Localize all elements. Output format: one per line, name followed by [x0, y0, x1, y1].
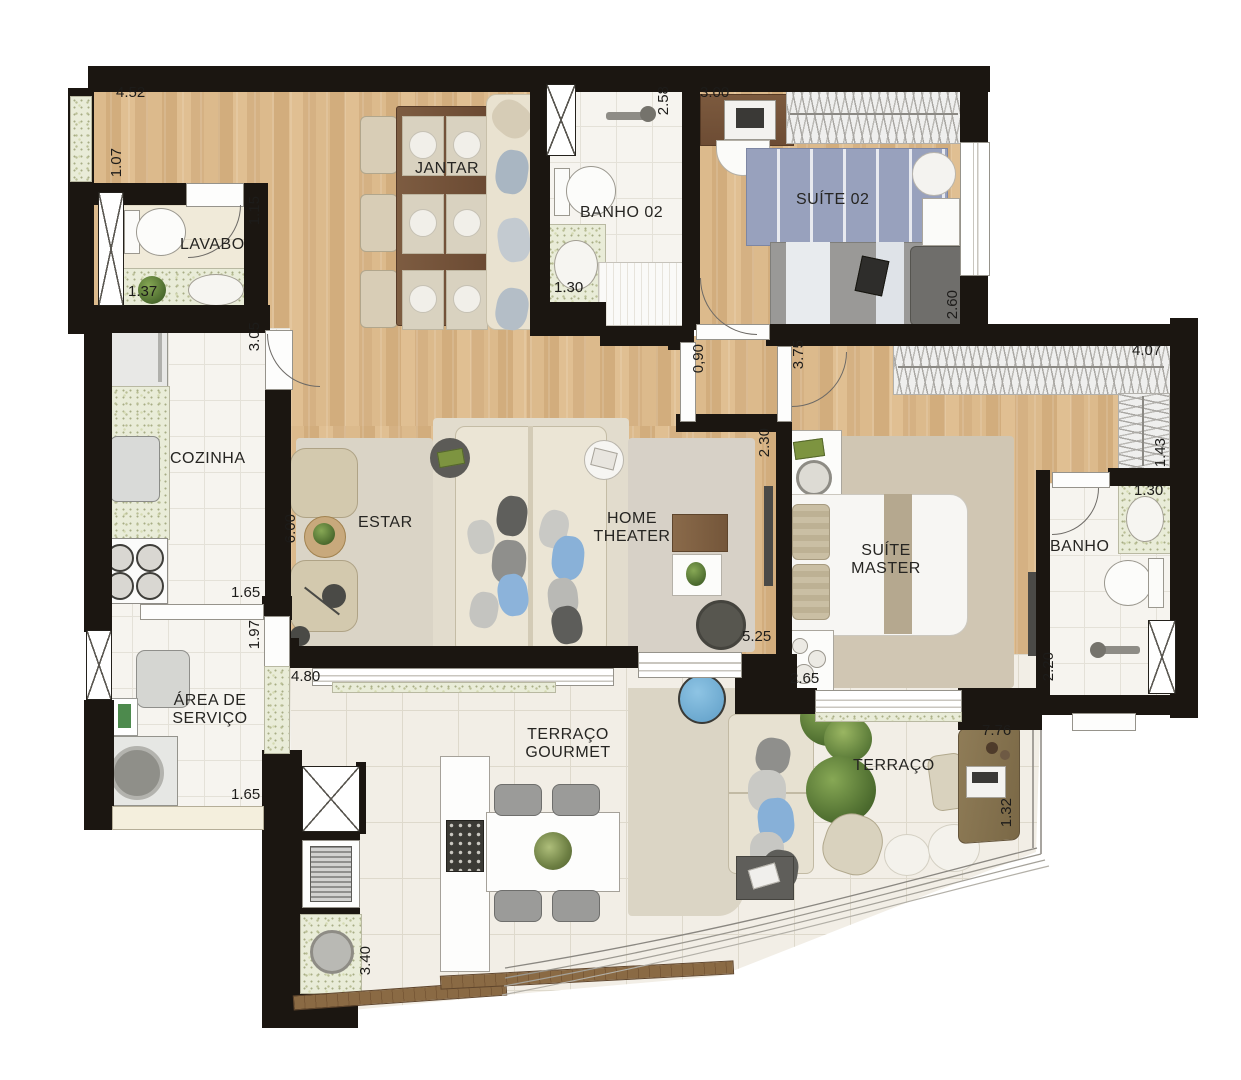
gourmet-sink [310, 930, 354, 974]
banho-door [1052, 472, 1110, 488]
nightstand-suite02 [922, 198, 960, 246]
kitchen-sink [110, 436, 160, 502]
dim-gourmet-width: 4.80 [291, 668, 320, 685]
terrace-pouf [884, 834, 930, 876]
wall [262, 750, 302, 1028]
dining-chair [360, 194, 398, 252]
room-label-suite02: SUÍTE 02 [796, 191, 869, 209]
shaft-banho [1148, 620, 1176, 694]
floor-corridor [530, 336, 694, 430]
round-table-suite02 [912, 152, 956, 196]
dim-lavabo-depth: 1.15 [246, 196, 263, 225]
banho-sink [1126, 496, 1164, 542]
window-planter [264, 666, 290, 754]
plant-pot [313, 523, 335, 545]
dim-hall-width: 0,90 [690, 344, 707, 373]
servico-pass [140, 604, 264, 620]
sofa-spine [528, 426, 533, 652]
shaft-gourmet [302, 766, 360, 832]
dining-chair [360, 270, 398, 328]
wall [92, 305, 270, 333]
dim-closet-depth: 1.43 [1152, 438, 1169, 467]
window-planter [70, 96, 92, 182]
dim-banho-shower: 2.20 [1040, 652, 1057, 681]
dim-jantar-left: 1.07 [108, 148, 125, 177]
dim-banho02-sink: 1.30 [554, 279, 583, 296]
coffee-cup [986, 742, 998, 754]
lavabo-door [186, 183, 244, 207]
wall [296, 646, 638, 668]
plate [409, 285, 437, 313]
dim-cozinha-door: 3.05 [246, 322, 263, 351]
centerpiece-flowers [534, 832, 572, 870]
deco-cup [808, 650, 826, 668]
pouf [696, 600, 746, 650]
closet-strip [893, 342, 1172, 395]
plate [453, 209, 481, 237]
gourmet-door-jamb [264, 616, 290, 668]
dining-chair [360, 116, 398, 174]
deco-plant [686, 562, 706, 586]
closet-rod [1142, 396, 1144, 466]
dim-lavabo-width: 1.37 [128, 283, 157, 300]
gourmet-chair [552, 890, 600, 922]
laundry-basket [118, 704, 131, 728]
wardrobe-suite02 [786, 88, 964, 144]
window-suite-master [815, 690, 962, 714]
dim-cozinha-pass: 1.65 [231, 584, 260, 601]
dim-suite-master-win: 2.65 [790, 670, 819, 687]
plate [453, 285, 481, 313]
coffee-cup [1000, 750, 1010, 760]
dim-suite02-desk: 3.00 [700, 84, 729, 101]
plate [453, 131, 481, 159]
rug-terraco [628, 688, 744, 916]
computer-screen [736, 108, 764, 128]
room-label-home-theater: HOME THEATER [570, 510, 694, 546]
wall [84, 806, 112, 830]
roller-blind [310, 846, 352, 902]
wall [776, 414, 792, 692]
room-label-banho02: BANHO 02 [580, 204, 663, 222]
wall [1040, 695, 1172, 715]
stove-burner [136, 544, 164, 572]
dim-servico-depth: 1.97 [246, 620, 263, 649]
room-label-area-servico: ÁREA DE SERVIÇO [160, 692, 260, 728]
wall [84, 330, 112, 632]
closet-rod [898, 366, 1164, 368]
lavabo-toilet-bowl [136, 208, 186, 256]
dim-terraco-desk: 1.32 [998, 798, 1015, 827]
plate [409, 209, 437, 237]
room-label-jantar: JANTAR [415, 160, 479, 178]
wall [530, 302, 606, 336]
tv-home-theater [764, 486, 773, 586]
wall [84, 700, 114, 808]
gourmet-chair [552, 784, 600, 816]
servico-sill [112, 806, 264, 830]
dim-servico-width: 1.65 [231, 786, 260, 803]
bed-sheet [786, 242, 830, 332]
dim-terraco-len: 7.76 [982, 722, 1011, 739]
wall [682, 88, 700, 330]
grill-cooktop [446, 820, 484, 872]
sliding-door-gourmet [638, 652, 742, 678]
shaft-banho02 [546, 84, 576, 156]
bed-pillow [792, 564, 830, 620]
dim-suite02-depth: 2.60 [944, 290, 961, 319]
window-banho [1072, 713, 1136, 731]
deco-cup [792, 638, 808, 654]
wall [785, 688, 817, 714]
room-label-terraco-gourmet: TERRAÇO GOURMET [508, 726, 628, 762]
room-label-lavabo: LAVABO [180, 236, 245, 254]
plate [409, 131, 437, 159]
washing-machine-door [110, 746, 164, 800]
dim-gourmet-counter: 3.40 [357, 946, 374, 975]
dim-suite-master-len: 5.25 [742, 628, 771, 645]
tv-suite-master [1028, 572, 1036, 656]
dim-suite-master-tv: 2.30 [756, 428, 773, 457]
banho-toilet-tank [1148, 558, 1164, 608]
wardrobe-rod [790, 113, 958, 115]
lavabo-sink [188, 274, 244, 306]
laptop-screen [972, 772, 998, 783]
armchair [290, 448, 358, 518]
window-planter [815, 712, 962, 722]
fridge-handle [158, 328, 162, 382]
bed-pillow [792, 504, 830, 560]
duct-shaft [98, 192, 124, 306]
dim-corredor: 3.75 [790, 340, 807, 369]
dim-closet-width: 4.07 [1132, 342, 1161, 359]
shower-tray [598, 262, 686, 326]
banho-toilet-bowl [1104, 560, 1152, 606]
terrace-plant [824, 716, 872, 762]
room-label-banho: BANHO [1050, 538, 1109, 556]
blue-side-table [678, 674, 726, 724]
speaker [796, 460, 832, 496]
stove-burner [136, 572, 164, 600]
window-suite02 [960, 142, 990, 276]
dim-banho-sink: 1.30 [1134, 482, 1163, 499]
service-door [86, 630, 112, 700]
room-label-terraco: TERRAÇO [853, 757, 935, 775]
dim-banho02-depth: 2.58 [655, 86, 672, 115]
gourmet-chair [494, 784, 542, 816]
room-label-estar: ESTAR [358, 514, 413, 532]
dim-jantar-width: 4.52 [116, 84, 145, 101]
room-label-cozinha: COZINHA [170, 450, 246, 468]
gourmet-chair [494, 890, 542, 922]
window-planter [332, 682, 556, 693]
shower-head [640, 106, 656, 122]
floor-plan: JANTAR BANHO 02 SUÍTE 02 LAVABO COZINHA … [0, 0, 1241, 1080]
room-label-suite-master: SUÍTE MASTER [836, 542, 936, 578]
banho-shower-head [1090, 642, 1106, 658]
dim-estar-height: 6.00 [282, 514, 299, 543]
